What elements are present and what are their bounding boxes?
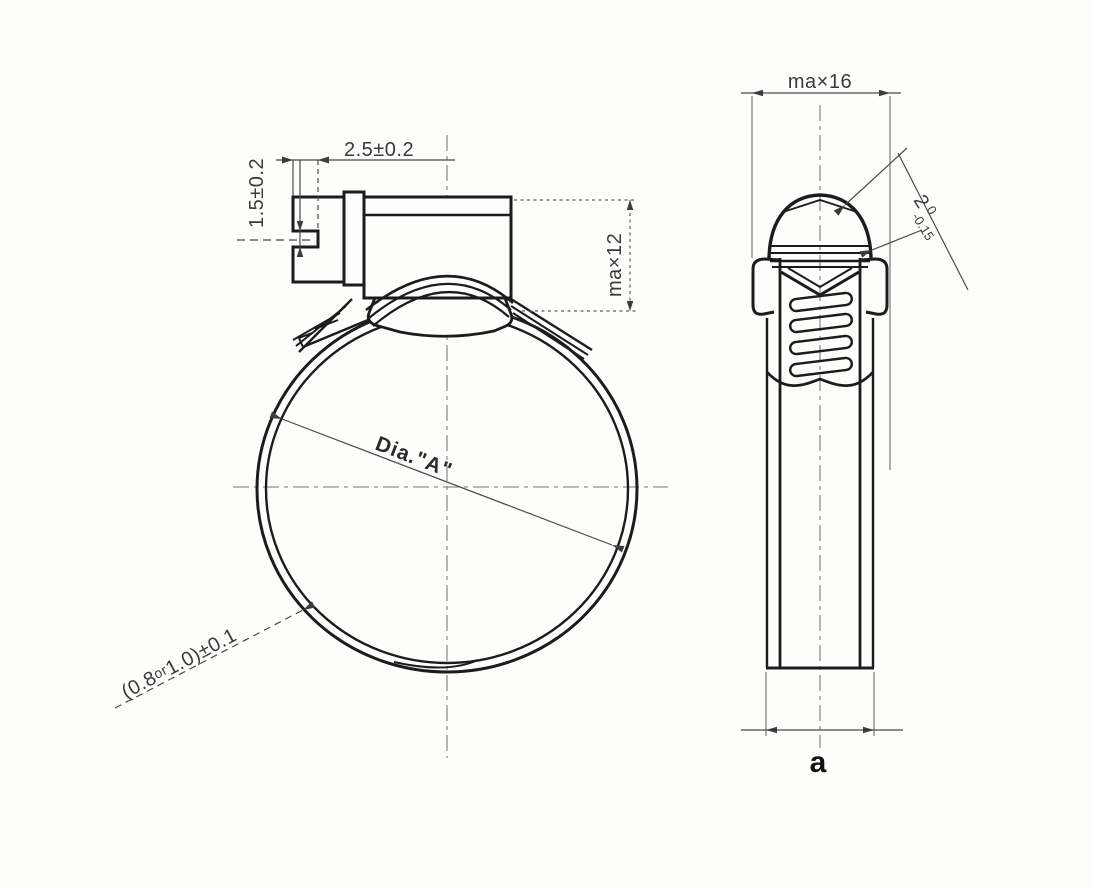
dim-slot-width-label: 1.5±0.2 bbox=[246, 158, 268, 228]
band-right-connectors bbox=[511, 299, 592, 359]
view-label: a bbox=[810, 746, 827, 779]
dim-slot-depth-label: 2.5±0.2 bbox=[344, 139, 414, 161]
side-view: ma×16 bbox=[741, 71, 968, 779]
drawing-sheet: Dia."A" (0.8or1.0)±0.1 2.5±0.2 1 bbox=[0, 0, 1093, 888]
dim-band-width: ma×16 bbox=[741, 71, 901, 96]
band-thickness-annotation: (0.8or1.0)±0.1 bbox=[115, 610, 303, 708]
screw-collar bbox=[344, 192, 364, 285]
dim-view-width: a bbox=[741, 672, 903, 779]
dim-band-thickness: 2 0 -0.15 bbox=[845, 148, 968, 290]
dim-housing-height: ma×12 bbox=[514, 200, 636, 311]
diameter-label: Dia."A" bbox=[372, 432, 455, 482]
band-thickness-label: (0.8or1.0)±0.1 bbox=[118, 624, 241, 703]
worm-housing bbox=[364, 197, 511, 298]
dim-band-width-label: ma×16 bbox=[788, 71, 852, 93]
dim-housing-height-label: ma×12 bbox=[604, 233, 626, 297]
front-view: Dia."A" (0.8or1.0)±0.1 2.5±0.2 1 bbox=[115, 135, 668, 758]
band-slots bbox=[789, 292, 852, 376]
hose-clamp-drawing: Dia."A" (0.8or1.0)±0.1 2.5±0.2 1 bbox=[0, 0, 1093, 888]
dim-thickness-lower-tol: -0.15 bbox=[909, 210, 937, 243]
